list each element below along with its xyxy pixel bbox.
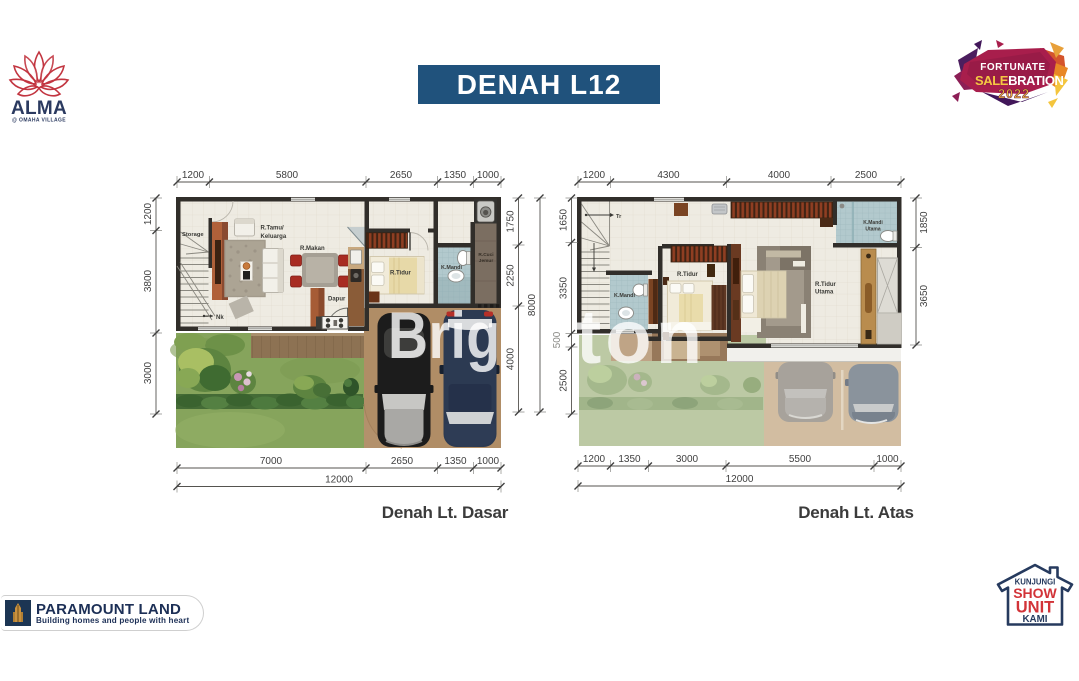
svg-text:Storage: Storage bbox=[182, 232, 204, 238]
svg-text:2650: 2650 bbox=[391, 456, 414, 467]
svg-text:1350: 1350 bbox=[444, 456, 467, 467]
svg-text:R.Tamu/: R.Tamu/ bbox=[261, 226, 285, 232]
svg-text:R.Cuci: R.Cuci bbox=[478, 252, 493, 258]
svg-text:1200: 1200 bbox=[583, 454, 606, 465]
svg-text:K.Mandi: K.Mandi bbox=[441, 265, 462, 271]
svg-text:Denah Lt. Atas: Denah Lt. Atas bbox=[798, 503, 914, 522]
svg-text:R.Tidur: R.Tidur bbox=[815, 282, 837, 288]
svg-text:R.Tidur: R.Tidur bbox=[390, 271, 412, 277]
svg-text:5800: 5800 bbox=[276, 170, 299, 181]
svg-text:8000: 8000 bbox=[527, 293, 538, 316]
svg-text:7000: 7000 bbox=[260, 456, 283, 467]
svg-text:2650: 2650 bbox=[390, 170, 413, 181]
svg-text:1000: 1000 bbox=[477, 170, 500, 181]
svg-text:K.Mandi: K.Mandi bbox=[863, 220, 883, 226]
svg-text:1750: 1750 bbox=[506, 210, 517, 233]
svg-text:2500: 2500 bbox=[559, 369, 570, 392]
svg-text:1000: 1000 bbox=[477, 456, 500, 467]
svg-text:Utama: Utama bbox=[815, 290, 834, 296]
svg-text:12000: 12000 bbox=[726, 474, 754, 485]
svg-text:5500: 5500 bbox=[789, 454, 812, 465]
svg-text:2250: 2250 bbox=[506, 264, 517, 287]
svg-text:Nk: Nk bbox=[216, 315, 224, 321]
svg-text:1350: 1350 bbox=[444, 170, 467, 181]
svg-text:3000: 3000 bbox=[143, 361, 154, 384]
svg-text:4000: 4000 bbox=[506, 347, 517, 370]
svg-text:1200: 1200 bbox=[143, 202, 154, 225]
svg-text:3800: 3800 bbox=[143, 269, 154, 292]
svg-text:Utama: Utama bbox=[865, 227, 881, 233]
svg-text:3000: 3000 bbox=[676, 454, 699, 465]
svg-text:Tr: Tr bbox=[616, 214, 622, 220]
svg-text:3350: 3350 bbox=[559, 276, 570, 299]
svg-text:1000: 1000 bbox=[876, 454, 899, 465]
svg-text:R.Makan: R.Makan bbox=[300, 246, 325, 252]
svg-text:KAMI: KAMI bbox=[1022, 614, 1047, 625]
svg-text:12000: 12000 bbox=[325, 475, 353, 486]
svg-text:1850: 1850 bbox=[919, 211, 930, 234]
svg-text:1200: 1200 bbox=[583, 170, 606, 181]
svg-text:4300: 4300 bbox=[657, 170, 680, 181]
svg-text:Keluarga: Keluarga bbox=[261, 234, 287, 240]
svg-text:Denah Lt. Dasar: Denah Lt. Dasar bbox=[382, 503, 509, 522]
svg-text:500: 500 bbox=[552, 331, 563, 348]
svg-text:2500: 2500 bbox=[855, 170, 878, 181]
svg-text:1200: 1200 bbox=[182, 170, 205, 181]
svg-text:Jemur: Jemur bbox=[479, 258, 494, 264]
svg-text:Dapur: Dapur bbox=[328, 297, 346, 303]
svg-text:3650: 3650 bbox=[919, 284, 930, 307]
svg-text:4000: 4000 bbox=[768, 170, 791, 181]
svg-text:1350: 1350 bbox=[618, 454, 641, 465]
svg-text:R.Tidur: R.Tidur bbox=[677, 272, 699, 278]
svg-text:1650: 1650 bbox=[559, 208, 570, 231]
